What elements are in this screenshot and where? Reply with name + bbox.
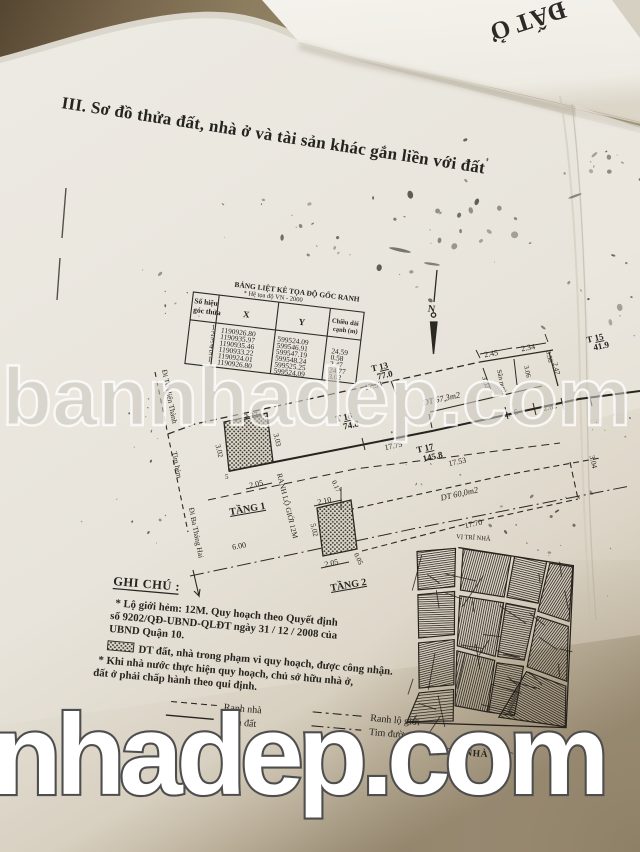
svg-text:5: 5 <box>225 473 229 481</box>
svg-text:bannhadep.com: bannhadep.com <box>2 352 631 443</box>
svg-text:nhadep.com: nhadep.com <box>0 692 603 819</box>
